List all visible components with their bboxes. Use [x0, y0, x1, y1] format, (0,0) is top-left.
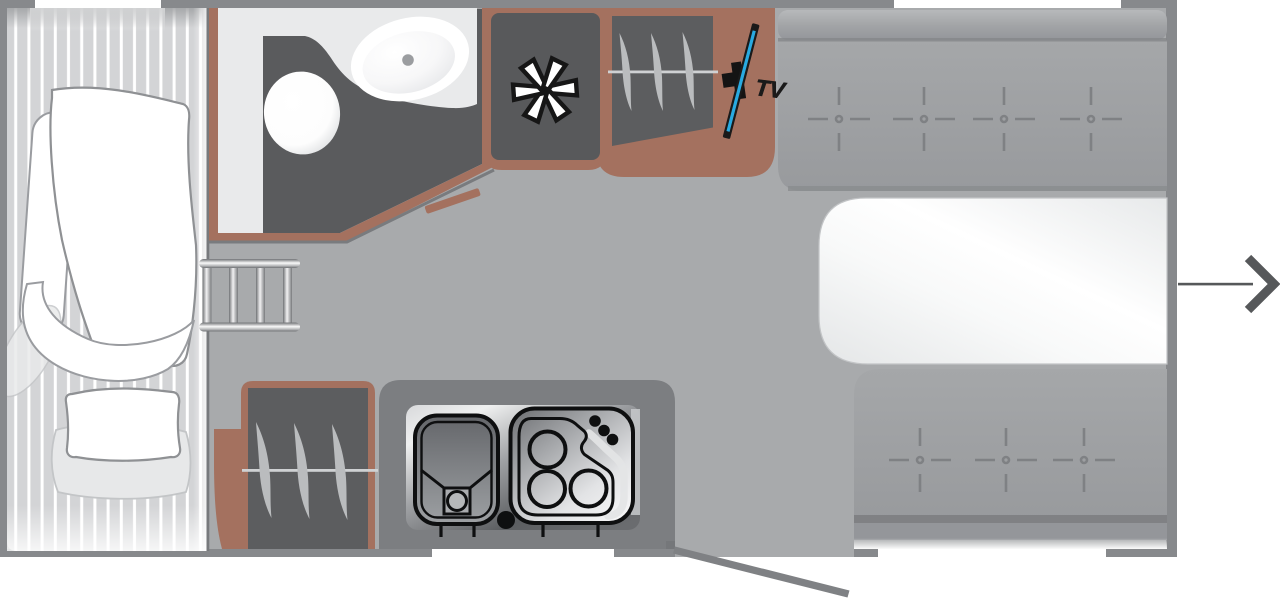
svg-text:TV: TV	[754, 74, 788, 104]
